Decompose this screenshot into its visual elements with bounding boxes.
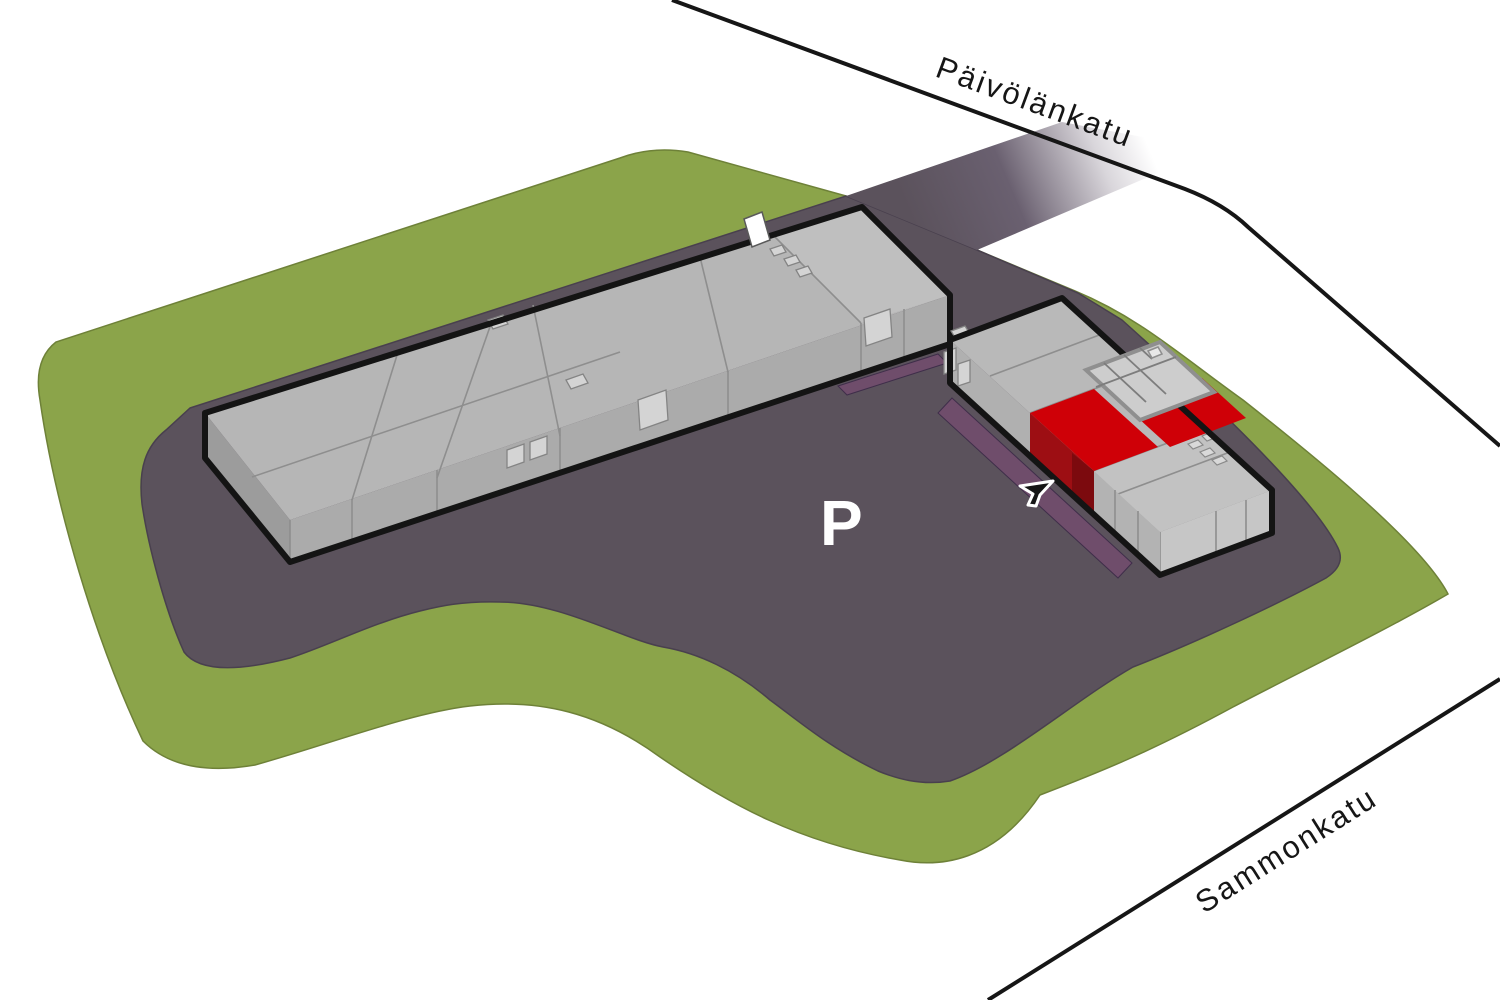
parking-label: P <box>820 487 863 559</box>
wall-box <box>958 360 970 386</box>
street-label-bottom: Sammonkatu <box>1189 780 1383 920</box>
site-plan-map: Päivölänkatu Sammonkatu P <box>0 0 1500 1000</box>
